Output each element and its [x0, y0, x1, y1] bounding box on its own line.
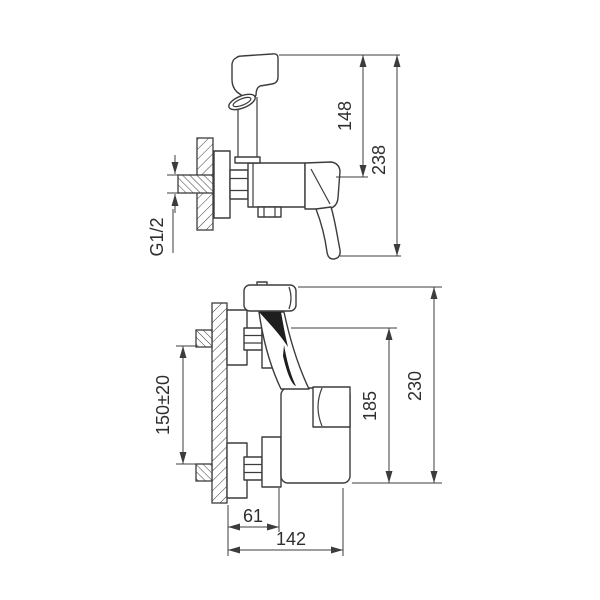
- mixer-body: [248, 163, 305, 207]
- supply-pipe: [178, 175, 213, 193]
- dim-text-61: 61: [243, 506, 263, 526]
- supply-stub-top: [196, 330, 212, 347]
- supply-stub-bottom: [196, 464, 212, 481]
- technical-drawing-page: 148 238 G1/2: [0, 0, 600, 600]
- handle-lever: [316, 207, 340, 259]
- mounting-nut: [230, 170, 248, 199]
- mounting-nut-bottom: [244, 457, 262, 480]
- dim-text-148: 148: [335, 101, 355, 131]
- handle-bar: [244, 282, 296, 311]
- hand-shower-head: [227, 54, 278, 113]
- dim-text-g12: G1/2: [147, 217, 167, 256]
- front-view: 230 185 150±20 61 142: [153, 282, 442, 556]
- handle-cap: [305, 162, 340, 209]
- mounting-nut-top: [244, 328, 262, 350]
- hose-outlet-nut: [258, 207, 281, 217]
- dim-text-150: 150±20: [153, 375, 173, 435]
- lever-handle: [305, 162, 340, 259]
- shower-mixer-dimension-drawing: 148 238 G1/2: [0, 0, 600, 600]
- dim-text-185: 185: [360, 391, 380, 421]
- side-view: 148 238 G1/2: [147, 54, 401, 259]
- outlet-spout: [313, 387, 350, 427]
- connection-block-bottom: [262, 437, 281, 487]
- thread-callout: G1/2: [147, 155, 179, 257]
- side-view-dimensions: 148 238 G1/2: [147, 55, 401, 257]
- dim-text-230: 230: [405, 371, 425, 401]
- escutcheon-plate: [214, 151, 230, 218]
- dim-text-238: 238: [369, 145, 389, 175]
- dim-text-142: 142: [276, 529, 306, 549]
- wall-section: [212, 303, 227, 503]
